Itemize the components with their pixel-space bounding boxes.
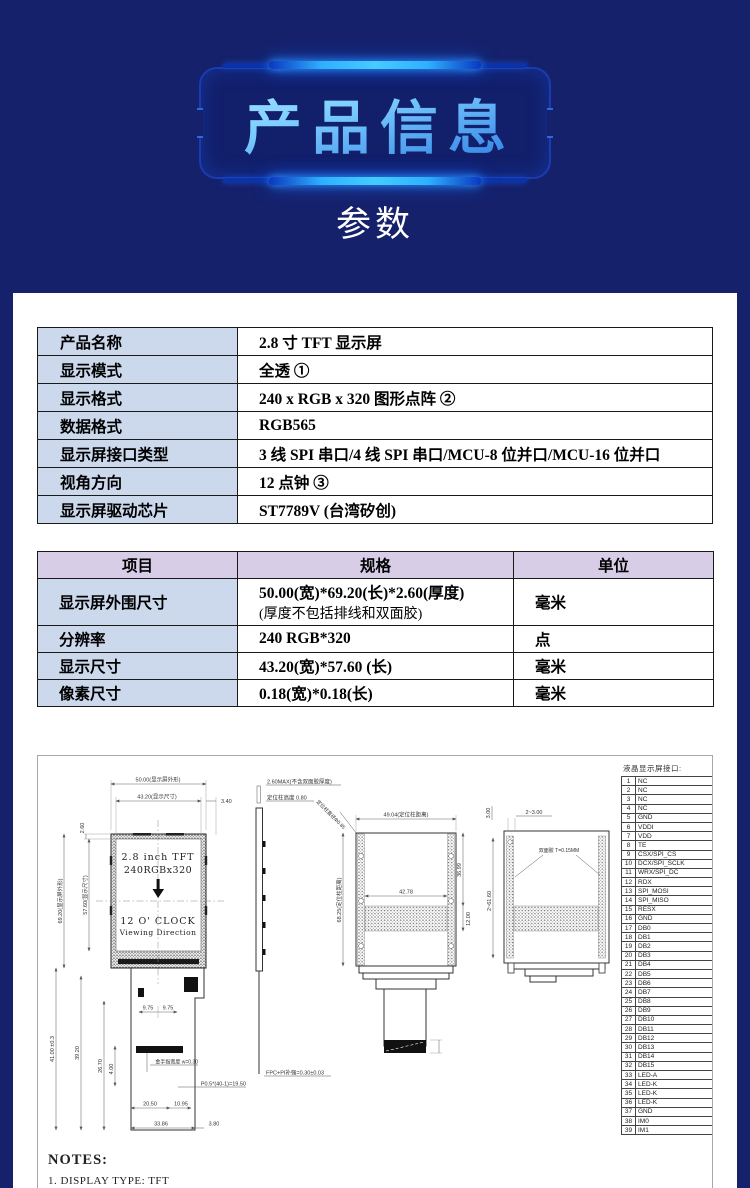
dim-4-00: 4.00 xyxy=(109,1064,115,1075)
spec-label: 显示屏接口类型 xyxy=(38,440,238,468)
pin-row: 27 DB10 xyxy=(622,1015,714,1024)
pin-table-title: 液晶显示屏接口: xyxy=(623,763,713,774)
size-spec-line1: 50.00(宽)*69.20(长)*2.60(厚度) xyxy=(259,581,507,603)
pin-number: 28 xyxy=(622,1025,636,1034)
pin-number: 15 xyxy=(622,905,636,914)
pin-name: LED-K xyxy=(636,1098,714,1107)
dim-3-40: 3.40 xyxy=(221,799,232,805)
banner-title: 产品信息 xyxy=(197,60,553,186)
pin-row: 8 TE xyxy=(622,841,714,850)
pin-row: 14 SPI_MISO xyxy=(622,896,714,905)
pin-row: 21 DB4 xyxy=(622,960,714,969)
spec-value: 12 点钟 ③ xyxy=(238,468,713,496)
pin-number: 13 xyxy=(622,887,636,896)
pin-number: 24 xyxy=(622,988,636,997)
pin-name: DB10 xyxy=(636,1015,714,1024)
table-row: 显示屏外围尺寸 50.00(宽)*69.20(长)*2.60(厚度) (厚度不包… xyxy=(38,579,714,626)
pin-name: GND xyxy=(636,914,714,923)
pin-name: DB9 xyxy=(636,1006,714,1015)
pin-number: 25 xyxy=(622,997,636,1006)
spec-label: 显示屏驱动芯片 xyxy=(38,496,238,524)
pin-row: 38 IM0 xyxy=(622,1116,714,1125)
size-table: 项目 规格 单位 显示屏外围尺寸 50.00(宽)*69.20(长)*2.60(… xyxy=(37,551,714,707)
pin-row: 35 LED-K xyxy=(622,1089,714,1098)
pin-number: 34 xyxy=(622,1080,636,1089)
dim-41-00: 41.00 ±0.3 xyxy=(50,1036,56,1062)
pin-number: 9 xyxy=(622,850,636,859)
dim-20-50: 20.50 xyxy=(143,1102,157,1108)
pin-name: DB12 xyxy=(636,1034,714,1043)
pin-name: NC xyxy=(636,786,714,795)
pin-number: 33 xyxy=(622,1071,636,1080)
pin-row: 1 NC xyxy=(622,777,714,786)
pin-name: IM1 xyxy=(636,1126,714,1135)
spec-value: RGB565 xyxy=(238,412,713,440)
pin-number: 27 xyxy=(622,1015,636,1024)
dim-68-25: 68.25(定位柱距离) xyxy=(335,877,343,922)
pin-number: 30 xyxy=(622,1043,636,1052)
pin-row: 34 LED-K xyxy=(622,1080,714,1089)
pin-name: DB11 xyxy=(636,1025,714,1034)
pin-row: 23 DB6 xyxy=(622,979,714,988)
size-spec-line2: (厚度不包括排线和双面胶) xyxy=(259,603,507,623)
pin-number: 5 xyxy=(622,813,636,822)
table-row: 显示格式 240 x RGB x 320 图形点阵 ② xyxy=(38,384,713,412)
spec-table: 产品名称 2.8 寸 TFT 显示屏 显示模式 全透 ① 显示格式 240 x … xyxy=(37,327,713,524)
pin-name: DB14 xyxy=(636,1052,714,1061)
pin-number: 18 xyxy=(622,933,636,942)
size-spec-line1: 43.20(宽)*57.60 (长) xyxy=(259,655,507,677)
pin-name: DB6 xyxy=(636,979,714,988)
dim-42-78: 42.78 xyxy=(399,890,413,896)
pin-row: 7 VDD xyxy=(622,832,714,841)
front-label-line1: 2.8 inch TFT xyxy=(121,852,194,863)
pin-name: DB4 xyxy=(636,960,714,969)
pin-number: 2 xyxy=(622,786,636,795)
pin-row: 12 RDX xyxy=(622,878,714,887)
pin-number: 7 xyxy=(622,832,636,841)
pin-name: RDX xyxy=(636,878,714,887)
section-heading: 参数 xyxy=(0,196,750,247)
size-spec: 50.00(宽)*69.20(长)*2.60(厚度) (厚度不包括排线和双面胶) xyxy=(238,579,514,626)
notes-line-1: 1. DISPLAY TYPE: TFT xyxy=(48,1175,169,1187)
table-row: 分辨率 240 RGB*320 点 xyxy=(38,626,714,653)
pin-name: NC xyxy=(636,777,714,786)
pin-row: 32 DB15 xyxy=(622,1061,714,1070)
pin-row: 31 DB14 xyxy=(622,1052,714,1061)
dim-33-86: 33.86 xyxy=(154,1122,168,1128)
pin-number: 36 xyxy=(622,1098,636,1107)
front-label-line4: Viewing Direction xyxy=(119,928,197,937)
dim-9-75-right: 9.75 xyxy=(163,1006,174,1012)
pin-name: DB2 xyxy=(636,942,714,951)
pin-name: GND xyxy=(636,1107,714,1116)
pin-row: 25 DB8 xyxy=(622,997,714,1006)
pin-row: 5 GND xyxy=(622,813,714,822)
pin-name: LED-K xyxy=(636,1080,714,1089)
pin-name: GND xyxy=(636,813,714,822)
pin-number: 8 xyxy=(622,841,636,850)
pin-row: 3 NC xyxy=(622,795,714,804)
pin-name: DB15 xyxy=(636,1061,714,1070)
pin-row: 30 DB13 xyxy=(622,1043,714,1052)
dim-2-61-60: 2~61.60 xyxy=(487,891,493,911)
side-view-drawing: 2.60MAX(不含双面胶厚度) 定位柱高度 0.80 FPC+PI补强=0.3… xyxy=(256,778,341,1077)
dim-43-20: 43.20(显示尺寸) xyxy=(137,793,177,801)
pin-row: 33 LED-A xyxy=(622,1071,714,1080)
pin-number: 23 xyxy=(622,979,636,988)
dim-3-80: 3.80 xyxy=(209,1122,220,1128)
size-spec: 43.20(宽)*57.60 (长) xyxy=(238,653,514,680)
pin-name: DB13 xyxy=(636,1043,714,1052)
pin-number: 22 xyxy=(622,969,636,978)
pin-number: 26 xyxy=(622,1006,636,1015)
goldfinger-label: 金手指宽度 w=0.30 xyxy=(155,1059,198,1066)
pin-row: 29 DB12 xyxy=(622,1034,714,1043)
mechanical-drawing-sheet: 2.8 inch TFT 240RGBx320 12 O' CLOCK View… xyxy=(37,755,713,1188)
size-spec: 0.18(宽)*0.18(长) xyxy=(238,680,514,707)
dim-2-3-00: 2~3.00 xyxy=(526,810,543,816)
table-row: 像素尺寸 0.18(宽)*0.18(长) 毫米 xyxy=(38,680,714,707)
dim-49-04: 49.04(定位柱距离) xyxy=(384,811,429,819)
size-unit: 毫米 xyxy=(514,680,714,707)
dim-3-00-tape: 3.00 xyxy=(486,808,492,819)
pin-name: DB8 xyxy=(636,997,714,1006)
dim-2-60: 2.60 xyxy=(80,823,86,834)
pin-row: 18 DB1 xyxy=(622,933,714,942)
table-row: 产品名称 2.8 寸 TFT 显示屏 xyxy=(38,328,713,356)
size-unit: 毫米 xyxy=(514,579,714,626)
pin-number: 6 xyxy=(622,822,636,831)
pin-row: 16 GND xyxy=(622,914,714,923)
pin-name: DB7 xyxy=(636,988,714,997)
pin-number: 1 xyxy=(622,777,636,786)
size-table-header-row: 项目 规格 单位 xyxy=(38,552,714,579)
boss-height-label: 定位柱高度 0.80 xyxy=(267,794,307,802)
dim-36-99: 36.99 xyxy=(457,863,463,877)
pin-row: 26 DB9 xyxy=(622,1006,714,1015)
dim-69-20: 69.20(显示屏外形) xyxy=(56,878,64,923)
pin-name: LED-K xyxy=(636,1089,714,1098)
pin-row: 22 DB5 xyxy=(622,969,714,978)
pin-row: 37 GND xyxy=(622,1107,714,1116)
front-label-line2: 240RGBx320 xyxy=(124,865,192,876)
size-spec: 240 RGB*320 xyxy=(238,626,514,653)
size-spec-line1: 0.18(宽)*0.18(长) xyxy=(259,682,507,704)
dim-26-70: 26.70 xyxy=(98,1059,104,1073)
pin-name: NC xyxy=(636,795,714,804)
pin-name: LED-A xyxy=(636,1071,714,1080)
pin-row: 9 CSX/SPI_CS xyxy=(622,850,714,859)
table-row: 显示模式 全透 ① xyxy=(38,356,713,384)
pin-name: IM0 xyxy=(636,1116,714,1125)
pin-number: 38 xyxy=(622,1116,636,1125)
spec-label: 显示格式 xyxy=(38,384,238,412)
table-row: 数据格式 RGB565 xyxy=(38,412,713,440)
size-header-spec: 规格 xyxy=(238,552,514,579)
table-row: 视角方向 12 点钟 ③ xyxy=(38,468,713,496)
pin-number: 12 xyxy=(622,878,636,887)
pin-number: 4 xyxy=(622,804,636,813)
dim-39-20: 39.20 xyxy=(75,1046,81,1060)
pin-number: 10 xyxy=(622,859,636,868)
pin-name: DB3 xyxy=(636,951,714,960)
pin-row: 15 RESX xyxy=(622,905,714,914)
spec-value: 全透 ① xyxy=(238,356,713,384)
side-thickness-label: 2.60MAX(不含双面胶厚度) xyxy=(267,778,332,786)
pin-row: 17 DB0 xyxy=(622,924,714,933)
spec-value: 3 线 SPI 串口/4 线 SPI 串口/MCU-8 位并口/MCU-16 位… xyxy=(238,440,713,468)
pin-table: 1 NC 2 NC 3 NC xyxy=(621,776,713,1135)
pin-row: 36 LED-K xyxy=(622,1098,714,1107)
pin-name: SPI_MISO xyxy=(636,896,714,905)
size-header-unit: 单位 xyxy=(514,552,714,579)
pitch-label: P0.5*(40-1)=19.50 xyxy=(201,1082,246,1088)
pin-number: 17 xyxy=(622,924,636,933)
pin-name: RESX xyxy=(636,905,714,914)
spec-value: ST7789V (台湾矽创) xyxy=(238,496,713,524)
front-label-line3: 12 O' CLOCK xyxy=(120,916,195,927)
spec-label: 显示模式 xyxy=(38,356,238,384)
tape-view-drawing: 3.00 2~3.00 2~61.60 双面胶 T=0.15MM xyxy=(486,806,609,982)
pin-name: DB1 xyxy=(636,933,714,942)
pin-row: 11 WRX/SPI_DC xyxy=(622,868,714,877)
dim-9-75-left: 9.75 xyxy=(143,1006,154,1012)
spec-value: 2.8 寸 TFT 显示屏 xyxy=(238,328,713,356)
pin-name: DB5 xyxy=(636,969,714,978)
pin-row: 4 NC xyxy=(622,804,714,813)
pin-number: 39 xyxy=(622,1126,636,1135)
pin-name: SPI_MOSI xyxy=(636,887,714,896)
content-card: 产品名称 2.8 寸 TFT 显示屏 显示模式 全透 ① 显示格式 240 x … xyxy=(13,293,737,1188)
pin-name: VDD xyxy=(636,832,714,841)
pin-name: DCX/SPI_SCLK xyxy=(636,859,714,868)
size-item: 像素尺寸 xyxy=(38,680,238,707)
table-row: 显示屏接口类型 3 线 SPI 串口/4 线 SPI 串口/MCU-8 位并口/… xyxy=(38,440,713,468)
pin-name: VDDI xyxy=(636,822,714,831)
pin-row: 6 VDDI xyxy=(622,822,714,831)
pin-row: 20 DB3 xyxy=(622,951,714,960)
pin-number: 11 xyxy=(622,868,636,877)
product-info-banner: 产品信息 xyxy=(197,60,553,186)
pin-name: DB0 xyxy=(636,924,714,933)
pin-row: 10 DCX/SPI_SCLK xyxy=(622,859,714,868)
pin-row: 13 SPI_MOSI xyxy=(622,887,714,896)
pin-number: 31 xyxy=(622,1052,636,1061)
pin-number: 3 xyxy=(622,795,636,804)
dim-10-95: 10.95 xyxy=(174,1102,188,1108)
front-view-drawing: 2.8 inch TFT 240RGBx320 12 O' CLOCK View… xyxy=(50,776,246,1131)
notes-title: NOTES: xyxy=(48,1152,169,1169)
size-spec-line1: 240 RGB*320 xyxy=(259,630,507,648)
pin-number: 19 xyxy=(622,942,636,951)
size-item: 显示尺寸 xyxy=(38,653,238,680)
spec-label: 产品名称 xyxy=(38,328,238,356)
dim-12-00: 12.00 xyxy=(466,912,472,926)
rear-view-drawing: 49.04(定位柱距离) 68.25(定位柱距离) 42.78 36.99 12… xyxy=(315,798,472,1053)
pin-name: TE xyxy=(636,841,714,850)
table-row: 显示屏驱动芯片 ST7789V (台湾矽创) xyxy=(38,496,713,524)
pin-number: 14 xyxy=(622,896,636,905)
size-unit: 毫米 xyxy=(514,653,714,680)
pin-number: 29 xyxy=(622,1034,636,1043)
pin-number: 32 xyxy=(622,1061,636,1070)
side-fpc-label: FPC+PI补强=0.30±0.03 xyxy=(266,1069,324,1077)
pin-name: WRX/SPI_DC xyxy=(636,868,714,877)
pin-row: 24 DB7 xyxy=(622,988,714,997)
pin-row: 2 NC xyxy=(622,786,714,795)
pin-row: 39 IM1 xyxy=(622,1126,714,1135)
pin-name: NC xyxy=(636,804,714,813)
size-item: 显示屏外围尺寸 xyxy=(38,579,238,626)
tape-label: 双面胶 T=0.15MM xyxy=(539,847,579,854)
table-row: 显示尺寸 43.20(宽)*57.60 (长) 毫米 xyxy=(38,653,714,680)
size-unit: 点 xyxy=(514,626,714,653)
spec-label: 数据格式 xyxy=(38,412,238,440)
dim-50-00: 50.00(显示屏外形) xyxy=(136,776,181,784)
pin-row: 28 DB11 xyxy=(622,1025,714,1034)
pin-number: 20 xyxy=(622,951,636,960)
size-item: 分辨率 xyxy=(38,626,238,653)
spec-label: 视角方向 xyxy=(38,468,238,496)
size-header-item: 项目 xyxy=(38,552,238,579)
dim-57-60: 57.60(显示尺寸) xyxy=(81,875,89,915)
spec-value: 240 x RGB x 320 图形点阵 ② xyxy=(238,384,713,412)
pin-name: CSX/SPI_CS xyxy=(636,850,714,859)
pin-number: 37 xyxy=(622,1107,636,1116)
pin-definition-panel: 液晶显示屏接口: 1 NC 2 NC xyxy=(621,761,713,1135)
pin-row: 19 DB2 xyxy=(622,942,714,951)
pin-number: 16 xyxy=(622,914,636,923)
drawing-notes: NOTES: 1. DISPLAY TYPE: TFT xyxy=(48,1152,169,1187)
pin-number: 21 xyxy=(622,960,636,969)
drawing-svg: 2.8 inch TFT 240RGBx320 12 O' CLOCK View… xyxy=(38,756,713,1188)
pin-number: 35 xyxy=(622,1089,636,1098)
